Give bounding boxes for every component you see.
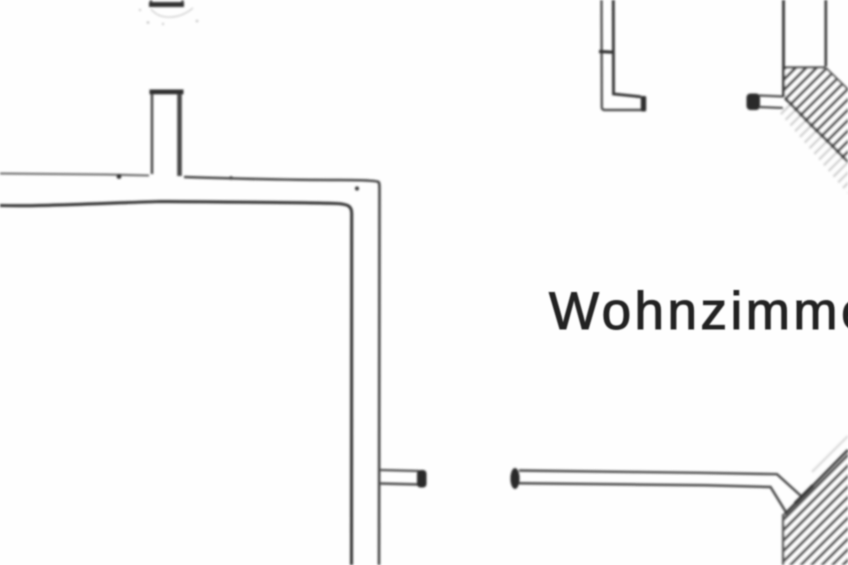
svg-text:Wohnzimmer: Wohnzimmer [549, 282, 848, 341]
